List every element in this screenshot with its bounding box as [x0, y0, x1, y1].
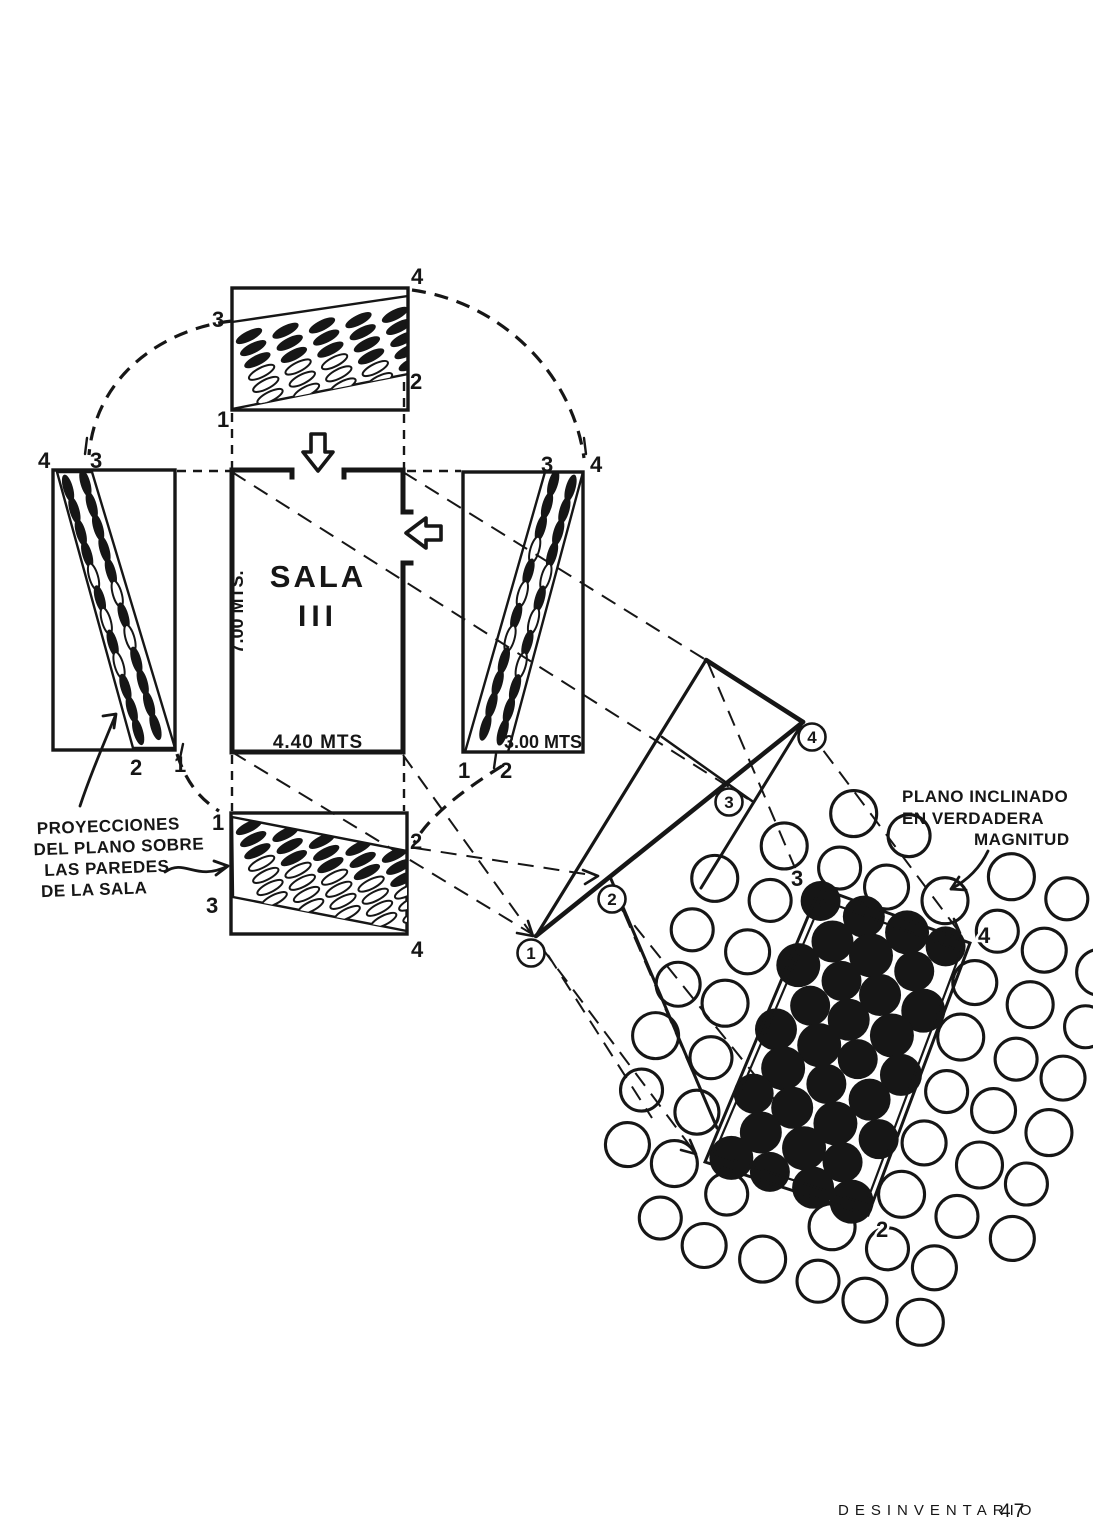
- room-width-dim: 4.40 MTS: [273, 732, 363, 753]
- right-wall-corner-3: 3: [541, 452, 553, 477]
- magnitude-note-line2: EN VERDADERA: [902, 809, 1044, 828]
- plane-filled-dots: [709, 881, 965, 1224]
- left-arrow-icon: [406, 518, 441, 548]
- top-wall-corner-4: 4: [411, 264, 424, 289]
- right-wall-corner-1: 1: [458, 758, 470, 783]
- top-wall-corner-1: 1: [217, 407, 229, 432]
- room-number: III: [298, 600, 338, 633]
- bottom-wall-corner-1: 1: [212, 810, 224, 835]
- plan-top-wall-left: [232, 470, 292, 477]
- magnitude-note-line3: MAGNITUD: [974, 830, 1070, 849]
- bottom-wall-corner-2: 2: [410, 829, 422, 854]
- projections-note-line1: PROYECCIONES: [37, 814, 181, 838]
- left-wall-corner-2: 2: [130, 755, 142, 780]
- arrow-to-bottom-band: [165, 861, 228, 875]
- arrow-to-left-band: [80, 714, 116, 806]
- bottom-wall-corner-3: 3: [206, 893, 218, 918]
- footer: DESINVENTARIO 47: [838, 1501, 1037, 1522]
- plane-corner-2: 2: [876, 1217, 888, 1242]
- top-wall-corner-3: 3: [212, 307, 224, 332]
- top-wall-corner-2: 2: [410, 369, 422, 394]
- left-wall-corner-3: 3: [90, 448, 102, 473]
- plane-corner-3: 3: [791, 866, 803, 891]
- fold-vertex-4-label: 4: [807, 728, 817, 747]
- right-wall-corner-4: 4: [590, 452, 603, 477]
- plane-corner-4: 4: [978, 923, 991, 948]
- projections-note-line3: LAS PAREDES: [44, 857, 170, 880]
- room-name: SALA: [270, 559, 366, 594]
- fold-vertex-3-label: 3: [724, 793, 733, 812]
- magnitude-note: PLANO INCLINADO EN VERDADERA MAGNITUD: [902, 787, 1070, 849]
- geometry-diagram: 1 2 3 4 3 4 2 1 4 3 2 1 3 4 1 2 1 2 3 4 …: [0, 0, 1093, 1536]
- fold-vertex-2-label: 2: [607, 890, 616, 909]
- room-height-dim: 7.00 MTS.: [227, 570, 247, 653]
- down-arrow-icon: [303, 434, 333, 471]
- magnitude-note-line1: PLANO INCLINADO: [902, 787, 1068, 806]
- folded-plane-edges: [536, 660, 803, 1128]
- projections-note-line4: DE LA SALA: [41, 878, 148, 901]
- left-wall-corner-4: 4: [38, 448, 51, 473]
- right-wall-corner-2: 2: [500, 758, 512, 783]
- projections-note: PROYECCIONES DEL PLANO SOBRE LAS PAREDES…: [33, 813, 206, 901]
- sketch-page: 1 2 3 4 3 4 2 1 4 3 2 1 3 4 1 2 1 2 3 4 …: [0, 0, 1093, 1536]
- room-depth-dim: 3.00 MTS: [504, 732, 582, 752]
- bottom-wall-corner-4: 4: [411, 937, 424, 962]
- projections-note-line2: DEL PLANO SOBRE: [33, 834, 204, 859]
- plan-right-wall-lower: [403, 563, 411, 752]
- fold-vertex-1-label: 1: [526, 944, 535, 963]
- footer-page-number: 47: [1000, 1501, 1027, 1522]
- arrow-to-true-plane: [951, 851, 988, 890]
- plan-top-wall-right: [344, 470, 403, 477]
